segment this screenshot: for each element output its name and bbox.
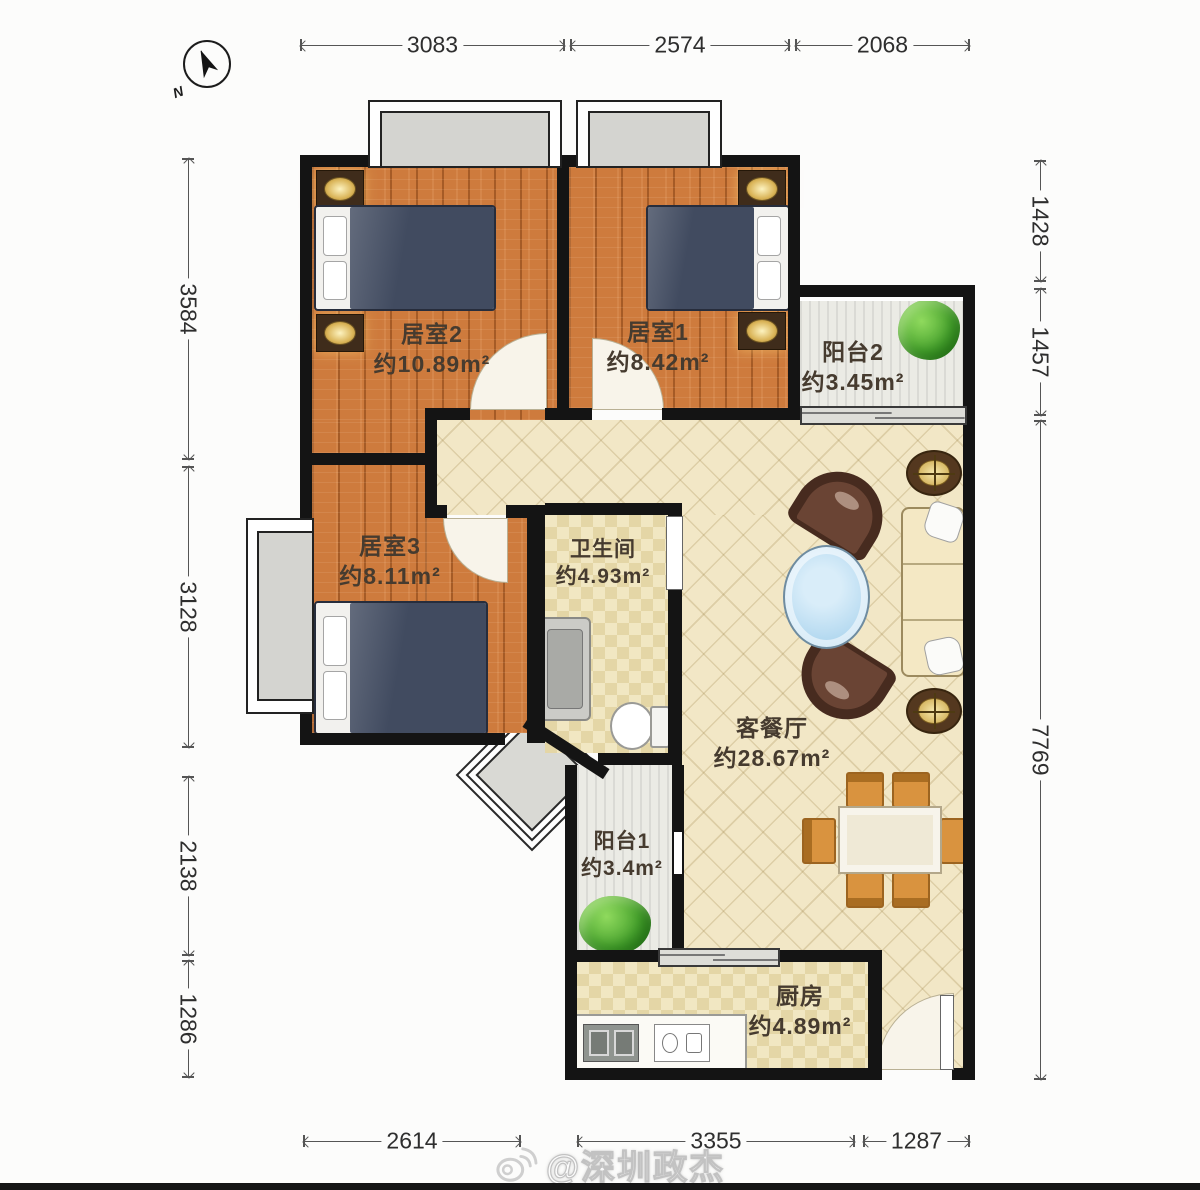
floor-hall: [437, 420, 963, 515]
nightstand-lamp-icon: [738, 170, 786, 208]
wall-br2-br1-divider: [557, 155, 569, 420]
dining-chair: [892, 772, 930, 808]
pillow-icon: [323, 261, 347, 300]
watermark: @深圳政杰: [494, 1140, 725, 1189]
room-name: 居室2: [332, 320, 532, 350]
dimension-value: 1286: [175, 988, 202, 1049]
wall-kitchen-top-left: [565, 950, 660, 962]
dimension-value: 3584: [175, 278, 202, 339]
room-area: 约3.4m²: [522, 855, 722, 882]
wall-balcony2-top: [788, 285, 975, 297]
north-arrow-icon: [190, 47, 224, 81]
bed-mattress: [318, 605, 352, 731]
room-label-bedroom2: 居室2 约10.89m²: [332, 320, 532, 380]
window-bedroom2-top: [368, 100, 562, 168]
window-bedroom1-top: [576, 100, 722, 168]
ceiling-lamp-icon: [906, 450, 962, 496]
dimension-bottom-3: 1287: [863, 1134, 970, 1148]
dimension-right-1: 1428: [1033, 160, 1047, 282]
sliding-window-kitchen: [658, 948, 780, 967]
dimension-right-2: 1457: [1033, 288, 1047, 416]
plant-icon: [579, 896, 651, 954]
wall-br3-bottom: [300, 733, 505, 745]
dimension-value: 2068: [852, 32, 913, 59]
wall-bottom-kitchen: [565, 1068, 882, 1080]
room-label-bedroom1: 居室1 约8.42m²: [558, 318, 758, 378]
dimension-top-1: 3083: [300, 38, 565, 52]
room-name: 居室3: [290, 532, 490, 562]
room-name: 阳台2: [753, 338, 953, 368]
pillow-icon: [323, 671, 347, 721]
floor-bedroom2-lower: [312, 420, 425, 453]
dining-chair: [846, 772, 884, 808]
wall-br3-top-b: [506, 505, 545, 518]
room-label-bathroom: 卫生间 约4.93m²: [503, 536, 703, 591]
bed-duvet: [350, 207, 494, 309]
pillow-icon: [323, 216, 347, 255]
dimension-value: 3083: [402, 32, 463, 59]
wall-bathroom-bottom: [598, 753, 680, 765]
door-panel-entry: [940, 995, 954, 1070]
sink-basin: [547, 629, 583, 709]
window-glass: [380, 111, 550, 168]
room-label-living-dining: 客餐厅 约28.67m²: [672, 714, 872, 774]
dimension-left-3: 2138: [181, 776, 195, 956]
room-name: 阳台1: [522, 828, 722, 855]
wall-bathroom-top: [545, 503, 668, 515]
wall-br3-top-a: [437, 505, 447, 518]
room-area: 约3.45m²: [753, 368, 953, 398]
bottom-border-bar: [0, 1183, 1200, 1190]
dimension-value: 2614: [381, 1128, 442, 1155]
dimension-value: 2138: [175, 835, 202, 896]
bed-bedroom2: [314, 205, 496, 311]
room-area: 约4.89m²: [700, 1012, 900, 1042]
bed-mattress: [318, 209, 352, 307]
dimension-value: 1457: [1027, 321, 1054, 382]
wall-balcony1-left: [565, 765, 577, 1080]
dining-chair: [846, 872, 884, 908]
weibo-logo-icon: [494, 1145, 538, 1185]
bed-mattress: [752, 209, 786, 307]
dining-table: [838, 806, 942, 874]
room-area: 约8.11m²: [290, 562, 490, 592]
window-glass: [588, 111, 710, 168]
bed-duvet: [648, 207, 754, 309]
bathroom-sink-vanity: [537, 617, 591, 721]
bed-bedroom1: [646, 205, 790, 311]
dimension-value: 3128: [175, 576, 202, 637]
wall-br1-bottom-right: [662, 408, 800, 420]
wall-br2-bottom-left: [300, 453, 437, 465]
floor-plan-canvas: 居室2 约10.89m² 居室1 约8.42m² 阳台2 约3.45m² 居室3…: [0, 0, 1200, 1190]
nightstand-lamp-icon: [316, 170, 364, 208]
dimension-left-2: 3128: [181, 466, 195, 748]
dining-chair: [802, 818, 836, 864]
wall-br2-bottom-right-a: [437, 408, 470, 420]
sliding-window-balcony2: [800, 406, 967, 425]
round-coffee-table: [783, 545, 870, 649]
dimension-top-2: 2574: [570, 38, 790, 52]
room-area: 约8.42m²: [558, 348, 758, 378]
dimension-right-3: 7769: [1033, 420, 1047, 1080]
dining-chair: [892, 872, 930, 908]
room-name: 卫生间: [503, 536, 703, 563]
pillow-icon: [757, 261, 781, 300]
kitchen-sink-icon: [583, 1024, 639, 1062]
pillow-icon: [757, 216, 781, 255]
pillow-icon: [323, 616, 347, 666]
wall-br1-right-upper: [788, 155, 800, 297]
dimension-value: 2574: [649, 32, 710, 59]
room-label-balcony1: 阳台1 约3.4m²: [522, 828, 722, 883]
balcony2-rail-band: [800, 297, 963, 301]
room-name: 居室1: [558, 318, 758, 348]
dimension-left-4: 1286: [181, 960, 195, 1078]
dimension-value: 1287: [886, 1128, 947, 1155]
dimension-value: 7769: [1027, 719, 1054, 780]
room-area: 约4.93m²: [503, 563, 703, 590]
compass-icon: N: [183, 40, 231, 88]
bed-bedroom3: [314, 601, 488, 735]
room-label-kitchen: 厨房 约4.89m²: [700, 982, 900, 1042]
room-area: 约28.67m²: [672, 744, 872, 774]
compass-north-label: N: [171, 83, 186, 101]
ceiling-lamp-icon: [906, 688, 962, 734]
bed-duvet: [350, 603, 486, 733]
watermark-text: @深圳政杰: [546, 1140, 725, 1189]
room-name: 厨房: [700, 982, 900, 1012]
room-area: 约10.89m²: [332, 350, 532, 380]
dimension-value: 1428: [1027, 190, 1054, 251]
room-label-balcony2: 阳台2 约3.45m²: [753, 338, 953, 398]
dimension-left-1: 3584: [181, 158, 195, 460]
room-name: 客餐厅: [672, 714, 872, 744]
wall-br2-bottom-right-b: [545, 408, 569, 420]
room-label-bedroom3: 居室3 约8.11m²: [290, 532, 490, 592]
wall-kitchen-top-right: [775, 950, 880, 962]
toilet-tank: [650, 706, 670, 748]
toilet-icon: [610, 702, 654, 750]
wall-right-outer: [963, 285, 975, 1080]
dimension-top-3: 2068: [795, 38, 970, 52]
dimension-bottom-1: 2614: [303, 1134, 521, 1148]
